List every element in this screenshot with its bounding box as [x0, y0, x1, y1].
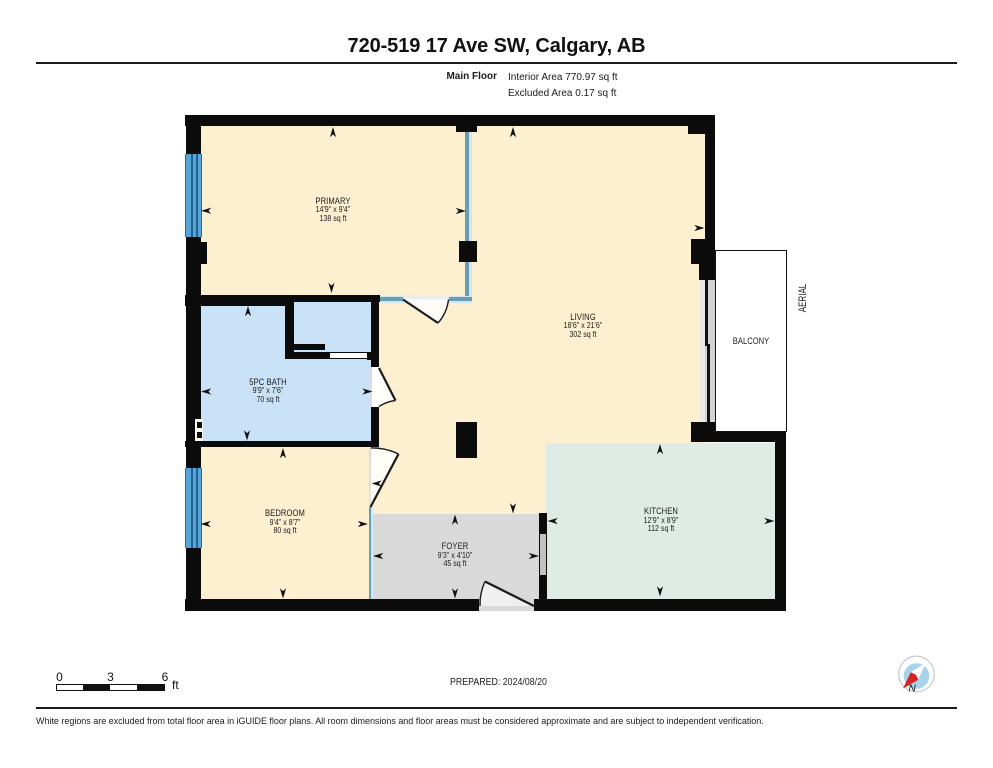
svg-text:AERIAL: AERIAL [797, 284, 809, 313]
svg-text:N: N [909, 684, 917, 695]
